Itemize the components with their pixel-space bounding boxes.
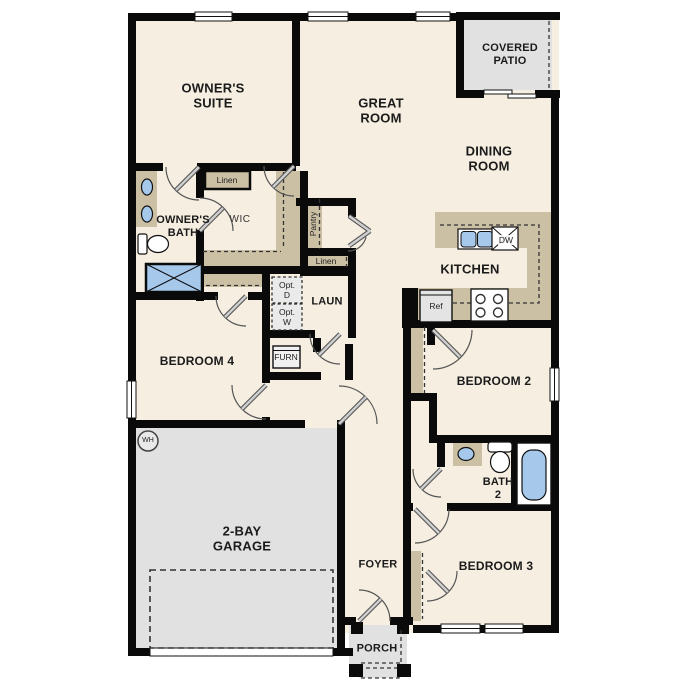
bedroom2-label: BEDROOM 2 bbox=[457, 374, 531, 388]
dining-room-label: DINING ROOM bbox=[466, 144, 513, 175]
opt-washer-label: Opt. W bbox=[279, 307, 295, 327]
wic-shelf-bottom bbox=[202, 250, 300, 266]
great-room-label: GREAT ROOM bbox=[358, 96, 404, 127]
laundry-label: LAUN bbox=[311, 296, 342, 309]
dishwasher-label: DW bbox=[498, 235, 514, 245]
wic-label: WIC bbox=[230, 214, 251, 226]
bath2-label: BATH 2 bbox=[483, 476, 514, 502]
porch-step bbox=[359, 668, 399, 678]
linen-hall-label: Linen bbox=[316, 256, 337, 266]
owners-bath-label: OWNER'S BATH bbox=[156, 214, 210, 240]
water-heater-label: WH bbox=[142, 437, 154, 445]
bedroom4-label: BEDROOM 4 bbox=[160, 354, 234, 368]
burner bbox=[476, 308, 485, 317]
toilet-tank bbox=[488, 442, 512, 452]
patio-slider-panel bbox=[508, 94, 536, 98]
bath2-sink bbox=[458, 448, 474, 461]
bedroom3-label: BEDROOM 3 bbox=[459, 559, 533, 573]
bath-sink bbox=[142, 206, 153, 222]
burner bbox=[494, 308, 503, 317]
burner bbox=[494, 295, 503, 304]
garage-door-opening bbox=[150, 648, 333, 656]
toilet-tank bbox=[138, 234, 147, 254]
patio-slider-panel bbox=[484, 90, 512, 94]
stove bbox=[471, 289, 508, 321]
owners-suite-label: OWNER'S SUITE bbox=[182, 81, 245, 112]
burner bbox=[476, 295, 485, 304]
bedroom2-closet bbox=[411, 325, 423, 395]
opt-dryer-label: Opt. D bbox=[279, 280, 295, 300]
furnace-label: FURN bbox=[274, 352, 298, 362]
foyer-label: FOYER bbox=[359, 559, 398, 572]
kitchen-label: KITCHEN bbox=[440, 261, 499, 276]
floor-plan-drawing bbox=[0, 0, 687, 687]
pantry-label: Pantry bbox=[308, 212, 318, 237]
bedroom4-closet-shelf bbox=[204, 274, 262, 287]
floor-plan-canvas: OWNER'S SUITE GREAT ROOM COVERED PATIO D… bbox=[0, 0, 687, 687]
garage-label: 2-BAY GARAGE bbox=[213, 524, 271, 555]
bath-sink bbox=[142, 179, 153, 195]
porch-label: PORCH bbox=[357, 643, 398, 656]
refrigerator-label: Ref bbox=[429, 301, 442, 311]
toilet-bowl bbox=[491, 452, 510, 473]
covered-patio-label: COVERED PATIO bbox=[482, 42, 538, 68]
sink-basin bbox=[478, 232, 493, 248]
linen-top-label: Linen bbox=[217, 175, 238, 185]
sink-basin bbox=[461, 232, 476, 248]
bathtub bbox=[522, 450, 546, 500]
